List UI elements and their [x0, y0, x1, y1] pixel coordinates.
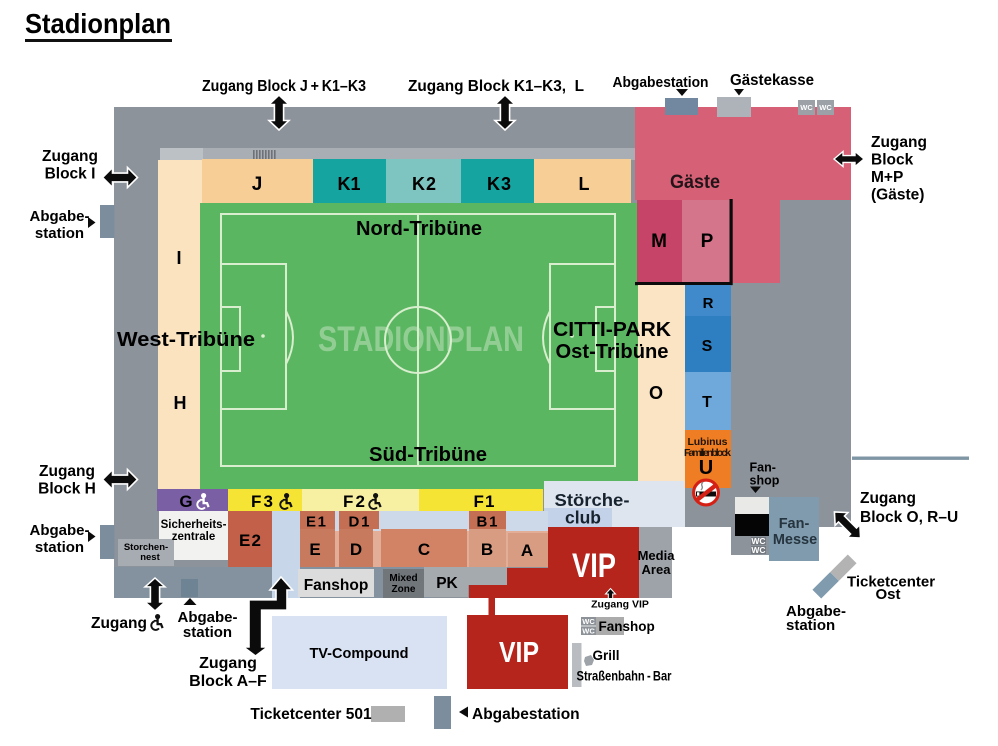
svg-text:D1: D1 — [349, 514, 370, 531]
svg-text:nest: nest — [140, 552, 160, 563]
svg-text:Abgabe-: Abgabe- — [30, 208, 90, 225]
svg-text:Abgabestation: Abgabestation — [613, 75, 709, 91]
svg-text:Zugang VIP: Zugang VIP — [591, 599, 649, 611]
svg-text:WC: WC — [800, 103, 813, 112]
svg-text:shop: shop — [750, 474, 780, 488]
svg-text:A: A — [521, 541, 533, 560]
svg-text:B1: B1 — [477, 514, 498, 531]
svg-text:Area: Area — [642, 562, 672, 577]
svg-text:Zugang: Zugang — [860, 490, 916, 507]
svg-text:Straßenbahn - Bar: Straßenbahn - Bar — [577, 669, 673, 684]
svg-text:E2: E2 — [239, 531, 261, 550]
svg-text:T: T — [702, 394, 712, 411]
svg-text:WC: WC — [582, 617, 595, 626]
svg-text:Block: Block — [871, 152, 914, 169]
svg-text:Zugang Block J + K1–K3: Zugang Block J + K1–K3 — [202, 78, 366, 95]
svg-text:C: C — [418, 540, 430, 559]
svg-text:L: L — [579, 174, 590, 194]
svg-text:Ost: Ost — [875, 586, 900, 603]
svg-text:Ost-Tribüne: Ost-Tribüne — [556, 341, 669, 363]
svg-text:Familienblock: Familienblock — [684, 447, 731, 459]
svg-text:S: S — [702, 338, 713, 355]
svg-text:Grill: Grill — [593, 648, 620, 663]
svg-text:zentrale: zentrale — [172, 531, 215, 543]
svg-text:K1: K1 — [338, 174, 361, 194]
svg-text:G: G — [179, 492, 192, 511]
svg-text:Zugang: Zugang — [91, 615, 147, 632]
svg-text:K2: K2 — [412, 174, 436, 194]
svg-text:CITTI-PARK: CITTI-PARK — [553, 319, 672, 341]
svg-text:Block O, R–U: Block O, R–U — [860, 509, 958, 526]
svg-text:VIP: VIP — [499, 637, 539, 669]
svg-text:club: club — [565, 508, 601, 528]
svg-text:Fan-: Fan- — [779, 516, 810, 532]
svg-text:station: station — [183, 624, 232, 641]
svg-text:Zugang: Zugang — [871, 134, 927, 151]
svg-text:Zugang: Zugang — [42, 148, 98, 165]
svg-text:WC: WC — [819, 103, 832, 112]
svg-text:Fanshop: Fanshop — [599, 619, 655, 634]
svg-text:PK: PK — [436, 575, 458, 592]
svg-text:Abgabestation: Abgabestation — [472, 706, 580, 723]
svg-text:E: E — [309, 540, 320, 559]
svg-text:I: I — [176, 248, 181, 268]
svg-text:O: O — [649, 383, 663, 403]
svg-text:K3: K3 — [487, 174, 511, 194]
svg-text:Mixed: Mixed — [389, 573, 417, 584]
svg-text:Süd-Tribüne: Süd-Tribüne — [369, 444, 487, 466]
svg-text:D: D — [350, 540, 362, 559]
svg-text:Stadionplan: Stadionplan — [25, 8, 171, 39]
svg-text:WC: WC — [751, 545, 765, 555]
svg-text:Zugang Block K1–K3, L: Zugang Block K1–K3, L — [408, 78, 584, 95]
svg-text:Gästekasse: Gästekasse — [730, 72, 814, 89]
svg-text:U: U — [699, 457, 713, 479]
svg-text:Media: Media — [638, 548, 676, 563]
svg-text:Zugang: Zugang — [199, 655, 257, 672]
svg-text:Block A–F: Block A–F — [189, 673, 267, 690]
svg-text:STADIONPLAN: STADIONPLAN — [318, 320, 524, 359]
svg-text:R: R — [703, 295, 714, 312]
svg-text:Fan-: Fan- — [750, 461, 776, 475]
svg-text:E1: E1 — [306, 514, 326, 531]
svg-text:Ticketcenter 501: Ticketcenter 501 — [250, 706, 372, 723]
svg-text:Sicherheits-: Sicherheits- — [161, 519, 227, 531]
svg-text:P: P — [701, 231, 714, 252]
svg-text:B: B — [481, 540, 493, 559]
svg-text:Nord-Tribüne: Nord-Tribüne — [356, 218, 482, 240]
svg-text:Zugang: Zugang — [39, 463, 95, 480]
svg-text:Zone: Zone — [392, 584, 416, 595]
svg-text:Block I: Block I — [45, 166, 96, 183]
svg-text:VIP: VIP — [572, 547, 616, 585]
svg-text:H: H — [174, 393, 187, 413]
svg-text:Block H: Block H — [38, 481, 96, 498]
svg-text:J: J — [252, 174, 263, 195]
svg-text:station: station — [786, 617, 835, 634]
svg-text:station: station — [35, 539, 84, 556]
svg-text:M+P: M+P — [871, 169, 903, 186]
svg-text:WC: WC — [582, 626, 595, 635]
svg-text:M: M — [651, 231, 667, 252]
svg-text:Gäste: Gäste — [670, 172, 720, 193]
svg-text:Abgabe-: Abgabe- — [30, 522, 90, 539]
svg-text:station: station — [35, 225, 84, 242]
svg-text:(Gäste): (Gäste) — [871, 187, 924, 204]
svg-text:Fanshop: Fanshop — [304, 577, 369, 594]
svg-text:West-Tribüne: West-Tribüne — [117, 329, 255, 351]
svg-text:TV-Compound: TV-Compound — [309, 646, 408, 662]
svg-text:Messe: Messe — [773, 532, 817, 548]
